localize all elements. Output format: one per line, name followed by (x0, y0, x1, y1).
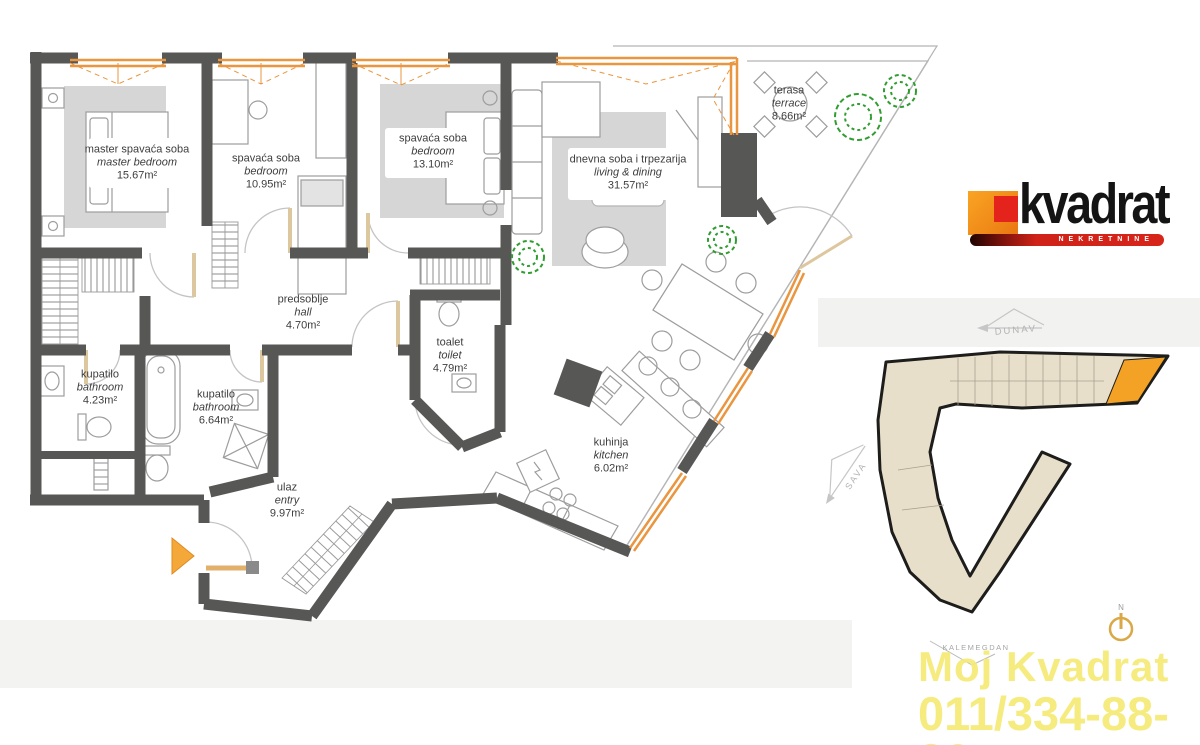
room-name-en: toilet (433, 350, 467, 363)
watermark: Moj Kvadrat 011/334-88-36 (918, 646, 1200, 745)
logo-tagline: NEKRETNINE (970, 234, 1164, 246)
room-label-hall: predsoblje hall 4.70m² (278, 294, 329, 333)
room-area: 8.66m² (772, 111, 806, 124)
watermark-line1: Moj Kvadrat (918, 646, 1200, 688)
logo-orange-square-icon (968, 191, 1018, 235)
room-label-entry: ulaz entry 9.97m² (270, 482, 304, 521)
floor-plan-drawing: DUNAV SAVA KALEMEGDAN N (0, 0, 1200, 745)
floorplan-page: DUNAV SAVA KALEMEGDAN N master spavaća s… (0, 0, 1200, 745)
room-name-sr: ulaz (270, 482, 304, 495)
compass-north-label: N (1118, 603, 1124, 612)
room-name-en: entry (270, 495, 304, 508)
room-name-en: bathroom (193, 402, 239, 415)
room-label-kitchen: kuhinja kitchen 6.02m² (594, 437, 629, 476)
watermark-line2: 011/334-88-36 (918, 690, 1200, 745)
room-area: 10.95m² (232, 179, 300, 192)
room-name-sr: spavaća soba (232, 153, 300, 166)
room-name-en: master bedroom (85, 157, 190, 170)
room-name-sr: kuhinja (594, 437, 629, 450)
entry-door (172, 538, 259, 574)
room-label-living-dining: dnevna soba i trpezarija living & dining… (570, 154, 687, 193)
room-name-sr: terasa (772, 85, 806, 98)
room-label-terrace: terasa terrace 8.66m² (772, 85, 806, 124)
room-name-sr: predsoblje (278, 294, 329, 307)
room-label-toilet: toalet toilet 4.79m² (433, 337, 467, 376)
logo-wordmark: kvadrat (1019, 174, 1168, 234)
logo-red-square-icon (994, 196, 1018, 222)
room-name-en: kitchen (594, 450, 629, 463)
room-label-bedroom-2: spavaća soba bedroom 10.95m² (232, 153, 300, 192)
entry-arrow-icon (172, 538, 194, 574)
room-name-sr: spavaća soba (399, 133, 467, 146)
room-area: 6.02m² (594, 463, 629, 476)
room-area: 13.10m² (399, 159, 467, 172)
room-area: 4.23m² (77, 395, 123, 408)
room-label-bedroom-3: spavaća soba bedroom 13.10m² (399, 133, 467, 172)
room-area: 6.64m² (193, 415, 239, 428)
room-name-en: living & dining (570, 167, 687, 180)
room-name-sr: master spavaća soba (85, 144, 190, 157)
room-name-en: bedroom (232, 166, 300, 179)
room-label-bathroom-small: kupatilo bathroom 4.23m² (77, 369, 123, 408)
room-name-sr: kupatilo (77, 369, 123, 382)
room-name-sr: dnevna soba i trpezarija (570, 154, 687, 167)
room-name-en: bedroom (399, 146, 467, 159)
room-area: 4.79m² (433, 363, 467, 376)
kvadrat-logo: kvadrat NEKRETNINE (966, 186, 1166, 248)
room-label-master-bedroom: master spavaća soba master bedroom 15.67… (85, 144, 190, 183)
room-area: 9.97m² (270, 508, 304, 521)
room-name-en: terrace (772, 98, 806, 111)
room-name-en: bathroom (77, 382, 123, 395)
room-name-en: hall (278, 307, 329, 320)
room-area: 4.70m² (278, 320, 329, 333)
logo-tagline-bar: NEKRETNINE (970, 234, 1164, 246)
sava-label: SAVA (843, 460, 868, 491)
site-plan: DUNAV SAVA KALEMEGDAN N (809, 309, 1168, 665)
room-area: 31.57m² (570, 180, 687, 193)
compass-icon: N (1110, 603, 1132, 640)
sava-arrow: SAVA (809, 435, 876, 512)
room-name-sr: toalet (433, 337, 467, 350)
room-name-sr: kupatilo (193, 389, 239, 402)
room-label-bathroom-large: kupatilo bathroom 6.64m² (193, 389, 239, 428)
room-area: 15.67m² (85, 170, 190, 183)
